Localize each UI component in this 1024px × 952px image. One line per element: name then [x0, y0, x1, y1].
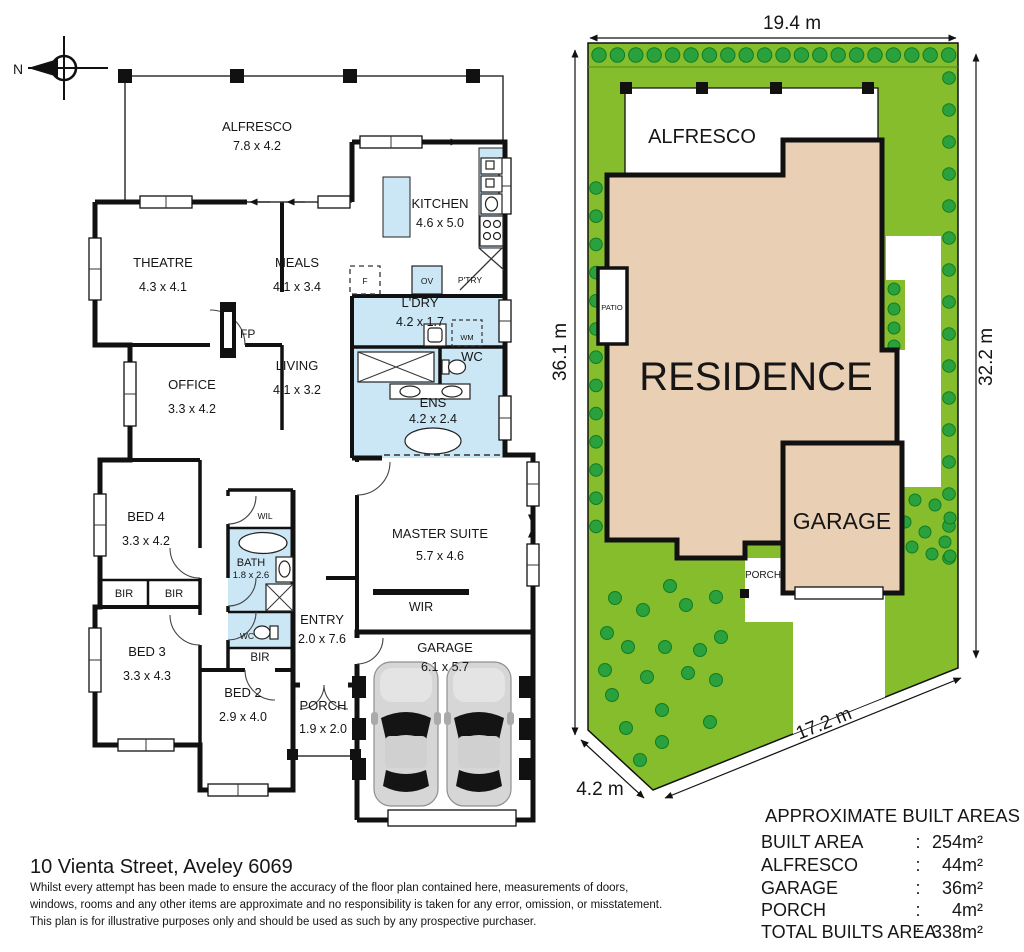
site-residence-label: RESIDENCE — [639, 355, 872, 399]
tree — [629, 48, 643, 62]
tree — [943, 72, 956, 85]
row-value: 338m² — [932, 922, 983, 942]
tree — [868, 48, 882, 62]
room-dims-laundry: 4.2 x 1.7 — [396, 315, 444, 329]
room-label-garage: GARAGE — [417, 640, 473, 655]
room-label-kitchen: KITCHEN — [411, 196, 468, 211]
wc-ens-label: WC — [461, 349, 483, 364]
room-dims-office: 3.3 x 4.2 — [168, 402, 216, 416]
room-label-bed3: BED 3 — [128, 644, 166, 659]
room-label-office: OFFICE — [168, 377, 216, 392]
tree — [849, 48, 863, 62]
pantry-label: P'TRY — [458, 275, 482, 285]
tree — [622, 641, 635, 654]
tree — [610, 48, 624, 62]
car-right — [444, 662, 514, 806]
row-colon: : — [915, 922, 920, 942]
site-alfresco-label: ALFRESCO — [648, 126, 756, 148]
tree — [739, 48, 753, 62]
tree — [943, 104, 956, 117]
tree — [831, 48, 845, 62]
row-colon: : — [915, 855, 920, 875]
row-label: ALFRESCO — [761, 855, 858, 875]
tree — [590, 492, 603, 505]
room-dims-master: 5.7 x 4.6 — [416, 549, 464, 563]
room-dims-porch: 1.9 x 2.0 — [299, 722, 347, 736]
tree — [656, 704, 669, 717]
room-label-living: LIVING — [276, 358, 319, 373]
car-left — [371, 662, 441, 806]
tree — [886, 48, 900, 62]
tree — [813, 48, 827, 62]
tree — [943, 392, 956, 405]
tree — [757, 48, 771, 62]
tree — [664, 580, 677, 593]
room-dims-bed2: 2.9 x 4.0 — [219, 710, 267, 724]
table-row: PORCH : 4m² — [761, 900, 983, 920]
row-label: PORCH — [761, 900, 826, 920]
room-label-bed2: BED 2 — [224, 685, 262, 700]
floorplan-drawing: N — [0, 0, 1024, 952]
row-colon: : — [915, 900, 920, 920]
row-label: TOTAL BUILTS AREA — [761, 922, 936, 942]
bir-label-2: BIR — [165, 588, 183, 600]
wc-entry-label: WC — [240, 631, 254, 641]
fireplace — [220, 302, 236, 358]
room-label-ensuite: ENS — [420, 395, 447, 410]
tree — [682, 667, 695, 680]
tree — [590, 520, 603, 533]
tree — [888, 322, 900, 334]
table-row: ALFRESCO : 44m² — [761, 855, 983, 875]
fridge-label: F — [362, 276, 367, 286]
tree — [923, 48, 937, 62]
bir-label-1: BIR — [115, 588, 133, 600]
tree — [656, 736, 669, 749]
tree — [943, 360, 956, 373]
tree — [776, 48, 790, 62]
tree — [704, 716, 717, 729]
tree — [710, 674, 723, 687]
compass-north-label: N — [13, 61, 23, 77]
tree — [590, 407, 603, 420]
tree — [943, 168, 956, 181]
tree — [888, 303, 900, 315]
tree — [929, 499, 941, 511]
tree — [943, 200, 956, 213]
dim-right: 32.2 m — [976, 328, 997, 386]
tree — [941, 48, 955, 62]
kitchen-fixtures — [480, 158, 503, 246]
tree — [943, 232, 956, 245]
row-label: BUILT AREA — [761, 832, 863, 852]
room-label-bed4: BED 4 — [127, 509, 165, 524]
disclaimer-line-1: Whilst every attempt has been made to en… — [30, 882, 628, 894]
room-dims-living: 4.1 x 3.2 — [273, 383, 321, 397]
wil-label: WIL — [257, 511, 272, 521]
dim-bottom-left: 4.2 m — [576, 779, 624, 800]
tree — [637, 604, 650, 617]
tree — [665, 48, 679, 62]
tree — [702, 48, 716, 62]
wir-label: WIR — [409, 600, 433, 614]
room-label-alfresco: ALFRESCO — [222, 119, 292, 134]
fp-label: FP — [240, 327, 255, 341]
oven-label: OV — [421, 276, 434, 286]
tree — [888, 283, 900, 295]
built-areas-title: APPROXIMATE BUILT AREAS — [765, 805, 1020, 826]
tree — [590, 436, 603, 449]
address: 10 Vienta Street, Aveley 6069 — [30, 856, 293, 878]
tree — [939, 536, 951, 548]
room-label-laundry: L'DRY — [402, 295, 439, 310]
tree — [590, 238, 603, 251]
compass-icon: N — [13, 36, 108, 100]
room-dims-meals: 4.1 x 3.4 — [273, 280, 321, 294]
tree — [592, 48, 606, 62]
tree — [943, 296, 956, 309]
tree — [590, 379, 603, 392]
room-label-entry: ENTRY — [300, 612, 344, 627]
porch-post — [287, 749, 298, 760]
room-label-master: MASTER SUITE — [392, 526, 488, 541]
tree — [919, 526, 931, 538]
room-dims-alfresco: 7.8 x 4.2 — [233, 139, 281, 153]
row-colon: : — [915, 832, 920, 852]
tree — [715, 631, 728, 644]
tree — [620, 722, 633, 735]
bir-label-3: BIR — [250, 652, 269, 664]
room-dims-theatre: 4.3 x 4.1 — [139, 280, 187, 294]
tree — [905, 48, 919, 62]
table-row: BUILT AREA : 254m² — [761, 832, 983, 852]
room-label-bath: BATH — [237, 557, 266, 569]
tree — [590, 182, 603, 195]
room-dims-bed4: 3.3 x 4.2 — [122, 534, 170, 548]
tree — [906, 541, 918, 553]
room-label-theatre: THEATRE — [133, 255, 193, 270]
tree — [634, 754, 647, 767]
site-garage-label: GARAGE — [793, 508, 891, 534]
tree — [601, 627, 614, 640]
tree — [659, 641, 672, 654]
alfresco-boundary — [118, 69, 503, 202]
tree — [926, 548, 938, 560]
footer: 10 Vienta Street, Aveley 6069 Whilst eve… — [29, 856, 662, 928]
tree — [590, 210, 603, 223]
tree — [943, 264, 956, 277]
tree — [609, 592, 622, 605]
tree — [694, 644, 707, 657]
tree — [943, 136, 956, 149]
row-label: GARAGE — [761, 878, 838, 898]
room-dims-ensuite: 4.2 x 2.4 — [409, 412, 457, 426]
room-dims-kitchen: 4.6 x 5.0 — [416, 216, 464, 230]
tree — [943, 424, 956, 437]
row-value: 4m² — [952, 900, 983, 920]
dim-left: 36.1 m — [550, 323, 571, 381]
site-patio-label: PATIO — [601, 303, 623, 312]
garage-door — [388, 810, 516, 826]
siteplan: ALFRESCO PATIO RESIDENCE GARAGE PORCH — [588, 43, 958, 790]
room-label-meals: MEALS — [275, 255, 319, 270]
room-dims-garage: 6.1 x 5.7 — [421, 660, 469, 674]
tree — [794, 48, 808, 62]
tree — [721, 48, 735, 62]
row-colon: : — [915, 878, 920, 898]
room-dims-bed3: 3.3 x 4.3 — [123, 669, 171, 683]
wm-label: WM — [460, 333, 473, 342]
tree — [943, 328, 956, 341]
tree — [641, 671, 654, 684]
tree — [606, 689, 619, 702]
tree — [647, 48, 661, 62]
tree — [909, 494, 921, 506]
disclaimer-line-3: This plan is for illustrative purposes o… — [30, 916, 536, 928]
tree — [944, 550, 956, 562]
floorplan-page: N — [0, 0, 1024, 952]
room-dims-bath: 1.8 x 2.6 — [233, 570, 269, 581]
room-label-porch: PORCH — [300, 698, 347, 713]
site-porch-label: PORCH — [745, 570, 781, 581]
tree — [943, 488, 956, 501]
tree — [943, 456, 956, 469]
table-row: GARAGE : 36m² — [761, 878, 983, 898]
tree — [680, 599, 693, 612]
tree — [710, 591, 723, 604]
tree — [590, 464, 603, 477]
row-value: 254m² — [932, 832, 983, 852]
tree — [684, 48, 698, 62]
wc-fixtures — [254, 626, 278, 639]
room-dims-entry: 2.0 x 7.6 — [298, 632, 346, 646]
row-value: 44m² — [942, 855, 983, 875]
dim-top: 19.4 m — [763, 13, 821, 34]
tree — [944, 512, 956, 524]
disclaimer-line-2: windows, rooms and any other items are a… — [29, 899, 662, 911]
built-areas-table: APPROXIMATE BUILT AREAS BUILT AREA : 254… — [761, 805, 1020, 942]
wir-shelf — [373, 589, 469, 595]
row-value: 36m² — [942, 878, 983, 898]
tree — [590, 351, 603, 364]
tree — [599, 664, 612, 677]
table-row: TOTAL BUILTS AREA : 338m² — [761, 922, 983, 942]
site-garage-door — [795, 587, 883, 599]
